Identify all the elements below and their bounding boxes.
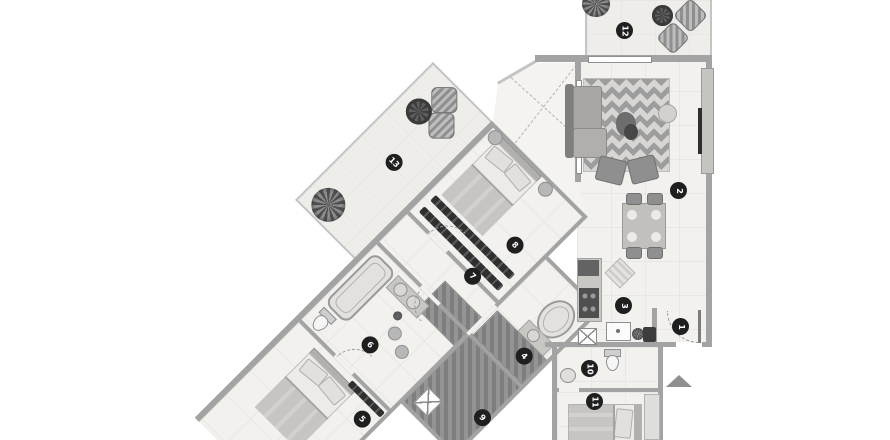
marker-maid-room: 11 <box>586 393 603 410</box>
dining-chair-icon <box>647 247 663 259</box>
dining-table-icon <box>622 203 666 249</box>
blanket <box>569 405 615 440</box>
tv-icon <box>698 108 702 154</box>
north-arrow-icon <box>666 375 692 387</box>
door-opening <box>559 388 579 392</box>
balcony-wall <box>710 0 712 57</box>
plate <box>651 210 661 220</box>
marker-kitchen: 3 <box>615 297 632 314</box>
bed-icon <box>568 404 642 440</box>
pouf-icon <box>431 87 457 113</box>
marker-living-room: 2 <box>670 182 687 199</box>
washbasin-icon <box>560 368 576 383</box>
washer-icon <box>578 328 597 345</box>
dining-chair-icon <box>647 193 663 205</box>
bathroom-left-wall <box>552 347 557 440</box>
kitchen-sink-icon <box>606 322 631 341</box>
faucet <box>616 329 620 333</box>
marker-bathroom-10: 10 <box>581 360 598 377</box>
plate <box>651 232 661 242</box>
plate <box>627 232 637 242</box>
stove-icon <box>579 288 599 318</box>
marker-balcony: 12 <box>616 22 633 39</box>
fridge-icon <box>643 327 656 342</box>
sofa-icon <box>573 86 602 130</box>
sofa-chaise <box>573 128 607 158</box>
pouf-round-icon <box>658 104 677 123</box>
coffee-table-icon <box>624 124 638 140</box>
headboard <box>634 405 641 440</box>
marker-hall: 1 <box>672 318 689 335</box>
wardrobe-icon <box>644 394 660 440</box>
tv-cabinet <box>701 68 714 174</box>
floor-plan-canvas: 13 8 <box>0 0 890 440</box>
dining-chair-icon <box>626 193 642 205</box>
balcony-window <box>588 56 652 63</box>
plate <box>627 210 637 220</box>
pouf-icon <box>428 113 454 139</box>
pillow <box>614 408 634 439</box>
dining-chair-icon <box>626 247 642 259</box>
kitchen-cabinet <box>578 260 599 276</box>
entrance-door-leaf <box>698 310 701 343</box>
